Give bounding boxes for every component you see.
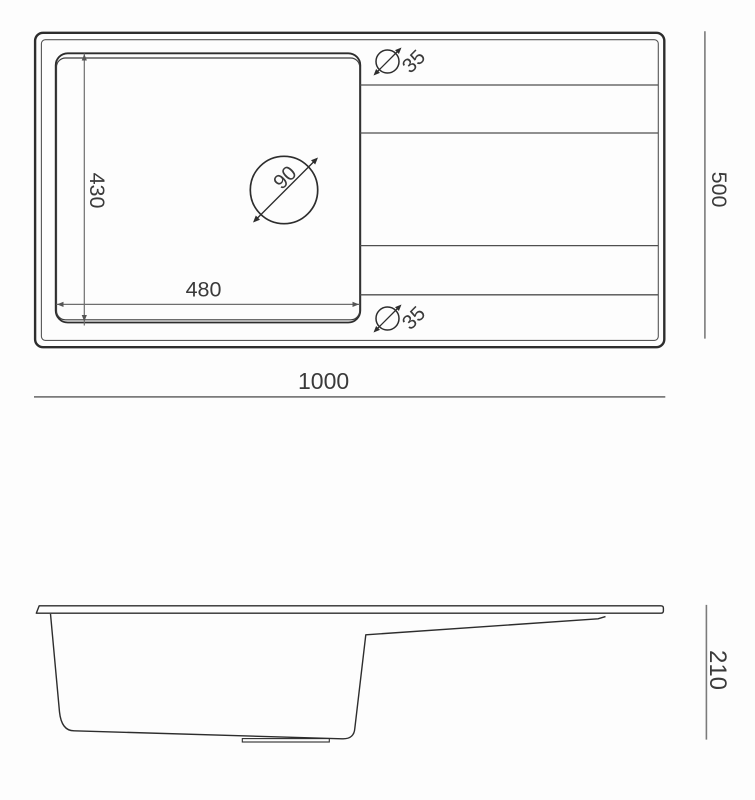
svg-text:1000: 1000 xyxy=(298,368,349,394)
svg-text:210: 210 xyxy=(704,650,731,690)
svg-text:480: 480 xyxy=(186,277,222,301)
svg-text:430: 430 xyxy=(85,173,109,209)
svg-text:500: 500 xyxy=(707,172,731,208)
